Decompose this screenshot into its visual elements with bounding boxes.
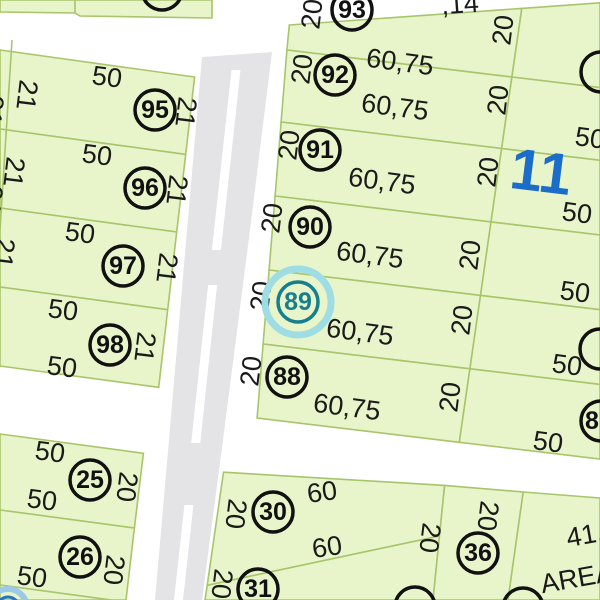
dimension-label: 20	[234, 354, 267, 387]
dimension-label: 50	[45, 350, 79, 384]
dimension-label: 21	[0, 155, 31, 188]
parcel-east-93	[512, 3, 600, 88]
dimension-label: 50	[90, 60, 124, 94]
dimension-label: 20	[285, 52, 318, 85]
dimension-label: 20	[433, 380, 466, 413]
dimension-label: 50	[15, 560, 49, 594]
dimension-label: 20	[413, 521, 446, 554]
dimension-label: 20	[110, 470, 143, 503]
dimension-label: 20	[97, 553, 130, 586]
dimension-label: 20	[219, 497, 252, 530]
dimension-label: 41,	[564, 517, 600, 553]
dimension-label: 50	[573, 121, 600, 155]
dimension-label: 50	[63, 216, 97, 250]
dimension-label: 50	[80, 138, 114, 172]
parcel-number: 98	[96, 331, 124, 359]
parcel-number: 90	[296, 213, 324, 241]
parcel-number: 31	[244, 575, 272, 600]
dimension-label: 21	[128, 330, 161, 363]
cadastral-map[interactable]: ,145050505050505050212121212121212121202…	[0, 0, 600, 600]
dimension-label: 50	[46, 293, 80, 327]
parcel-number: 8	[585, 407, 599, 435]
dimension-label: 60	[305, 475, 339, 509]
parcel-number: 91	[306, 136, 334, 164]
parcel-number: 36	[464, 539, 492, 567]
dimension-label: 50	[33, 435, 67, 469]
cadastral-map-viewport: ,145050505050505050212121212121212121202…	[0, 0, 600, 600]
dimension-label: 20	[486, 13, 519, 46]
parcel-number: 96	[131, 174, 159, 202]
dimension-label: 21	[0, 236, 21, 269]
dimension-label: 60	[310, 530, 344, 564]
dimension-label: 20	[453, 238, 486, 271]
dimension-label: 20	[471, 155, 504, 188]
parcel-number: 88	[273, 363, 301, 391]
parcel-number: 95	[141, 96, 169, 124]
parcel-number: 25	[76, 466, 104, 494]
dimension-label: 20	[255, 201, 288, 234]
parcel-number: 92	[321, 61, 349, 89]
dimension-label: 21	[150, 251, 183, 284]
block-number: 11	[507, 136, 576, 208]
dimension-label: 50	[25, 483, 59, 517]
selected-parcel-number: 89	[284, 288, 312, 316]
dimension-label: ,14	[440, 0, 480, 20]
dimension-label: 50	[558, 275, 592, 309]
dimension-label: 21	[10, 78, 43, 111]
dimension-label: 20	[481, 83, 514, 116]
parcel-number: 26	[66, 543, 94, 571]
parcel-east-88	[459, 369, 600, 459]
dimension-label: 20	[205, 567, 238, 600]
dimension-label: 20	[295, 0, 328, 31]
parcel-number: 97	[109, 252, 137, 280]
parcel-number: 93	[338, 0, 366, 24]
dimension-label: 50	[531, 425, 565, 459]
parcel-number: 30	[259, 498, 287, 526]
dimension-label: 20	[445, 303, 478, 336]
dimension-label: 20	[471, 499, 504, 532]
